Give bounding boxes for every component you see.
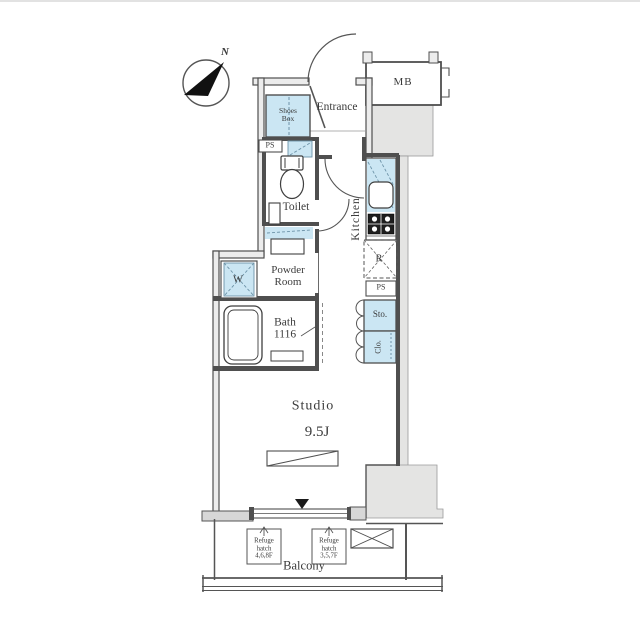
wall-bottom-left (202, 511, 253, 521)
wall-kitchen-top (366, 153, 399, 157)
floor-plan-canvas: N Shoes Box Entrance MB PS Toilet Kitche… (0, 0, 640, 630)
toilet-tank (281, 156, 303, 170)
bath-label-leader (301, 327, 315, 336)
wall-entrance-right (366, 78, 372, 158)
wall-corridor-left-a (315, 137, 319, 200)
bifold-doors (356, 300, 364, 363)
meter-box-room (366, 62, 441, 105)
window-marker-triangle (295, 499, 309, 509)
toilet-paper-holder (269, 203, 280, 224)
mb-bracket-top (441, 68, 449, 76)
wall-corridor-left-c (315, 293, 319, 371)
vanity-basin (271, 239, 304, 254)
burner-2 (385, 216, 390, 221)
burner-4 (385, 226, 390, 231)
wall-left-lower (213, 251, 219, 517)
entrance-door-leaf (310, 86, 325, 128)
pipe-space-left-box (259, 140, 282, 152)
wall-corridor-top (315, 155, 332, 159)
shoes-box (266, 95, 310, 137)
mb-wall-stub-right (429, 52, 438, 63)
wall-bottom-right-stub (350, 507, 366, 520)
shaft-block-bottom (366, 465, 443, 518)
wall-corridor-left-b (315, 229, 319, 253)
burner-1 (372, 216, 377, 221)
mb-bracket-bottom (441, 89, 449, 97)
toilet-bowl (281, 170, 304, 199)
shaft-block-top (371, 103, 433, 156)
mb-wall-stub-left (363, 52, 372, 63)
pipe-space-right-box (366, 281, 396, 296)
wall-bath-bottom (213, 366, 319, 371)
window-cap-right (347, 507, 351, 520)
floor-plan-drawing (0, 0, 640, 630)
burner-3 (372, 226, 377, 231)
hall-door-swing-arc (325, 159, 364, 198)
bath-step (271, 351, 303, 361)
entrance-door-swing-arc (308, 34, 356, 82)
wall-left-step (213, 251, 264, 258)
window-cap-left (249, 507, 254, 520)
storage-box (364, 300, 396, 331)
toilet-door-swing-arc (317, 199, 349, 231)
bathtub-inner (228, 310, 258, 360)
kitchen-sink (369, 182, 393, 208)
